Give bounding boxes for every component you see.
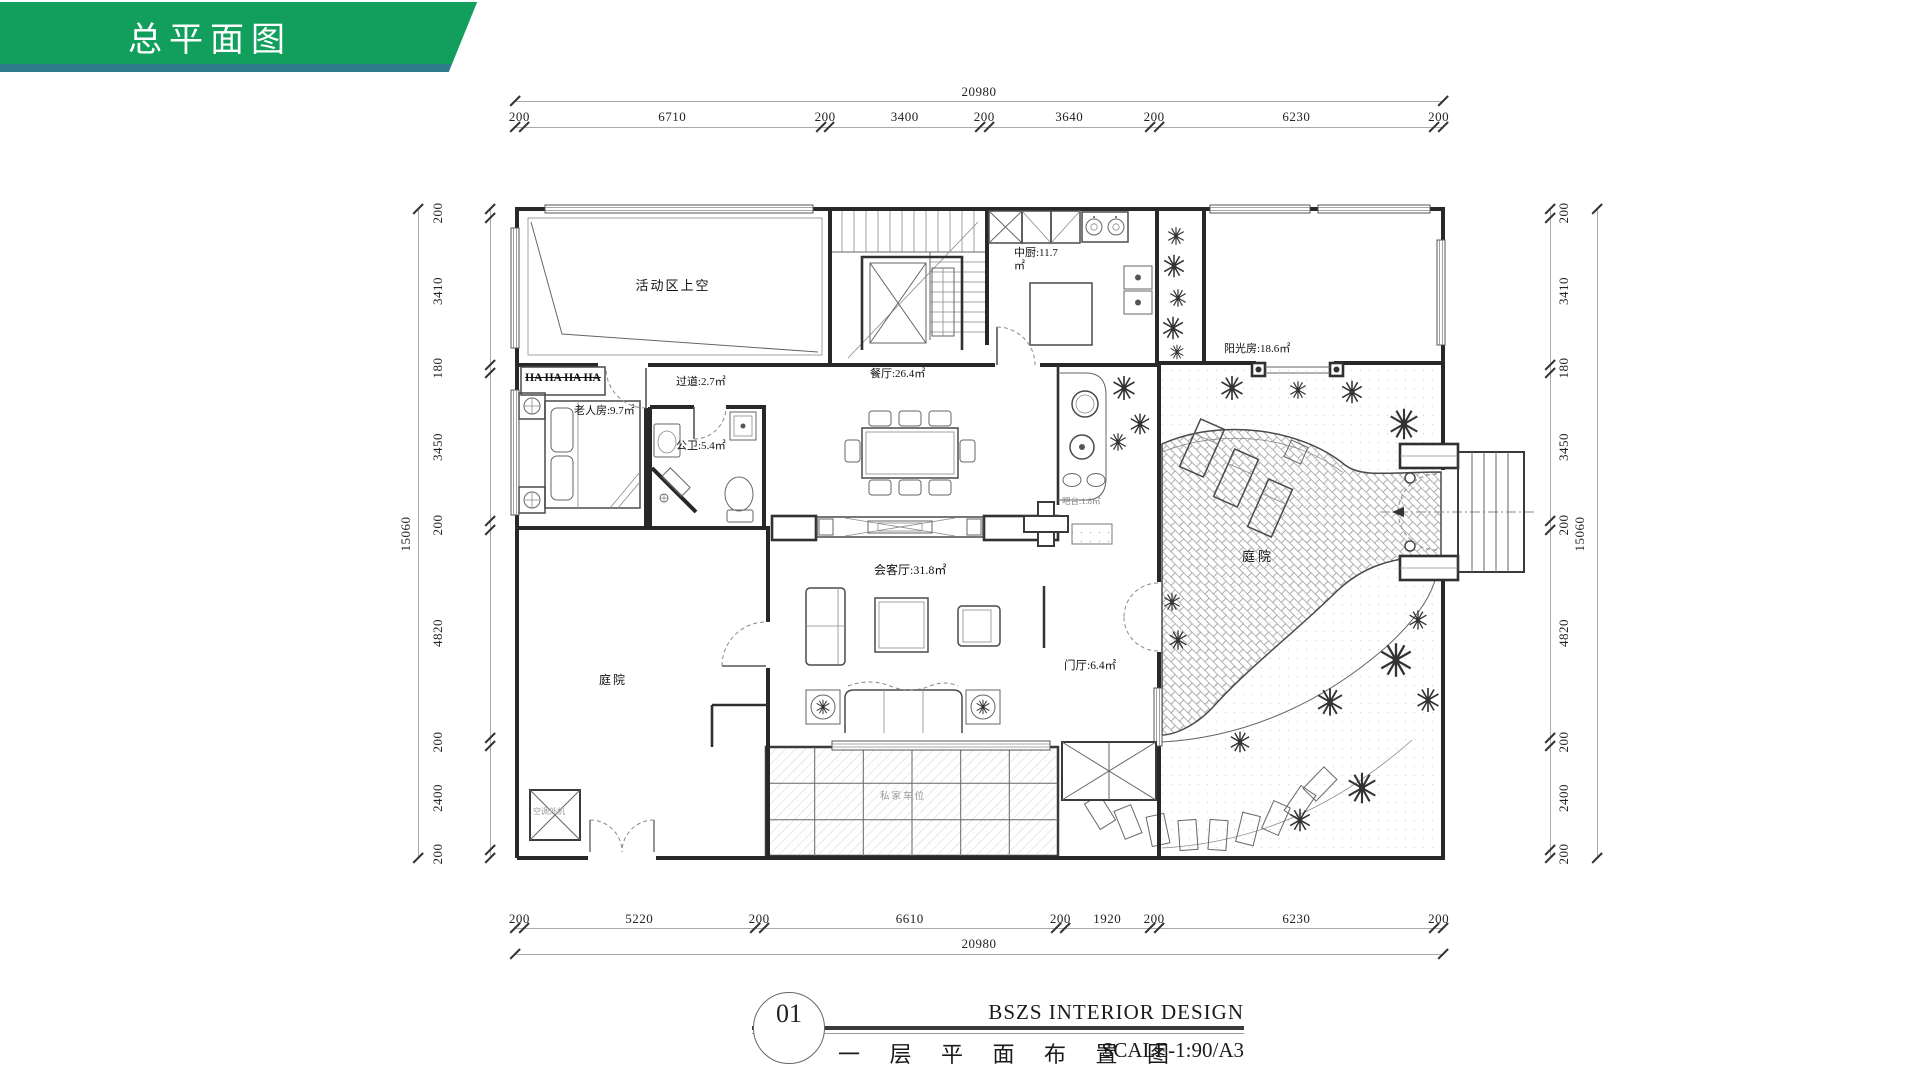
floor-plan-drawing — [0, 0, 1920, 1080]
room-label-elder-room: 老人房:9.7㎡ — [574, 405, 635, 418]
toilet — [725, 477, 753, 511]
stove — [1082, 212, 1128, 242]
room-label-sunroom: 阳光房:18.6㎡ — [1224, 343, 1290, 356]
kitchen-island — [1030, 283, 1092, 345]
wardrobe-hangers-symbol: HA HA HA HA — [523, 372, 603, 385]
room-label-kitchen: 中厨:11.7 ㎡ — [1014, 247, 1058, 272]
sheet: 总平面图 — [0, 0, 1920, 1080]
doormat — [1072, 524, 1112, 544]
sofa-main — [845, 690, 962, 733]
bedroom-furniture — [519, 367, 646, 513]
drawing-scale: SCALE-1:90/A3 — [900, 1038, 1244, 1063]
garden-gate — [1380, 444, 1534, 580]
dining-set — [845, 411, 975, 495]
room-label-foyer: 门厅:6.4㎡ — [1064, 660, 1116, 673]
room-label-bar: 吧台:1.8㎡ — [1062, 497, 1101, 507]
room-label-parking: 私家车位 — [880, 792, 926, 803]
sofa-left — [806, 588, 845, 665]
room-label-courtyard: 庭院 — [1242, 550, 1274, 565]
title-block-rule-thick — [752, 1026, 1244, 1030]
courtyard-garden — [1162, 367, 1441, 856]
coffee-table — [875, 598, 928, 652]
room-label-dining: 餐厅:26.4㎡ — [870, 368, 925, 381]
bar-counter — [1058, 373, 1106, 500]
room-label-ac: 空调外机 — [533, 807, 565, 816]
living-furniture — [722, 588, 1000, 733]
kitchen-fixtures — [989, 211, 1152, 365]
room-label-corridor: 过道:2.7㎡ — [676, 376, 726, 389]
room-label-void: 活动区上空 — [635, 279, 710, 294]
side-yard-elements — [530, 790, 654, 852]
drawing-number: 01 — [776, 999, 802, 1029]
bathroom-fixtures — [654, 407, 756, 522]
tv-cabinet — [817, 517, 983, 537]
armchair — [958, 606, 1000, 646]
room-label-kitchen-line1: 中厨:11.7 — [1014, 247, 1058, 259]
room-label-bath: 公卫:5.4㎡ — [676, 440, 726, 453]
room-label-side-yard: 庭院 — [599, 674, 627, 688]
room-label-kitchen-line2: ㎡ — [1014, 260, 1025, 272]
room-label-living: 会客厅:31.8㎡ — [874, 564, 946, 578]
studio-name: BSZS INTERIOR DESIGN — [900, 1000, 1244, 1025]
drawing-number-circle: 01 — [753, 992, 825, 1064]
stair-core — [832, 211, 985, 358]
title-block-rule-thin — [752, 1033, 1244, 1034]
